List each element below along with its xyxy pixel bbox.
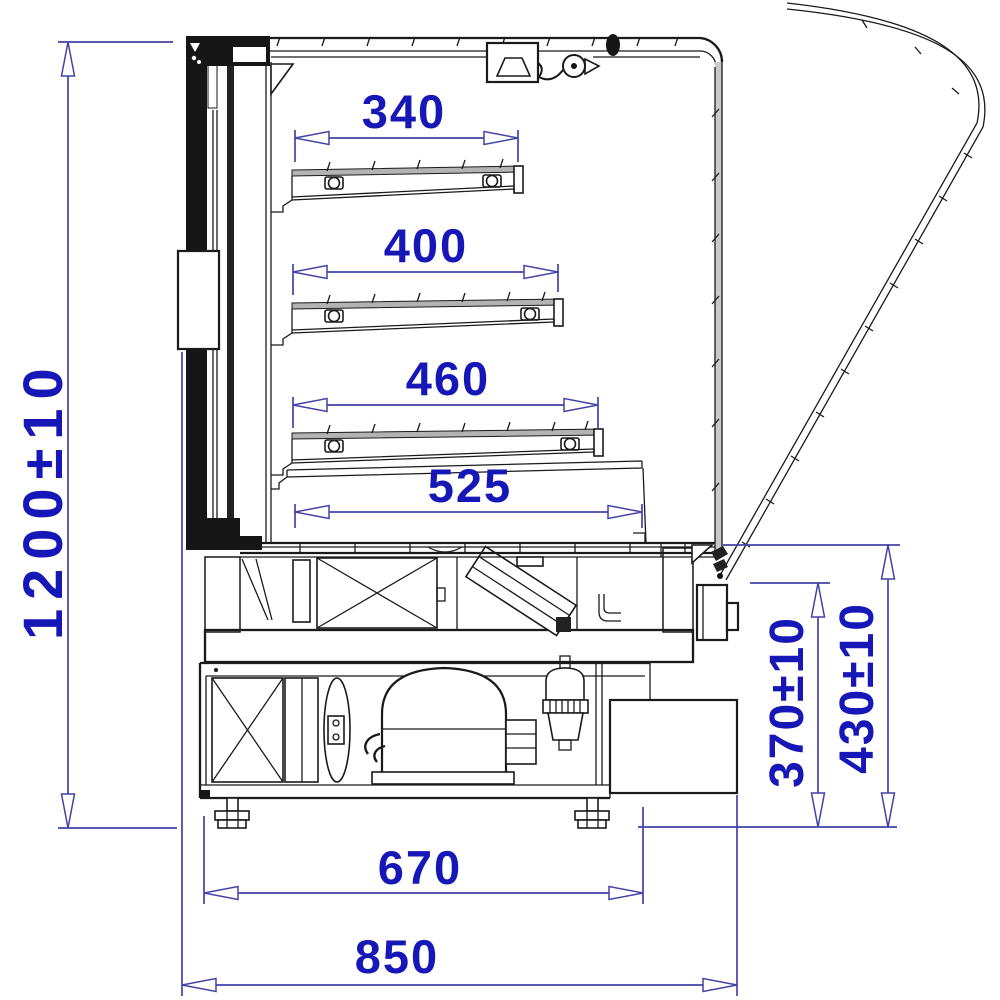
dim-label-counter-height: 430±10 xyxy=(831,602,884,774)
glass-hinge-latch xyxy=(692,545,728,579)
technical-drawing-page: 1200±10 340 400 460 525 670 850 xyxy=(0,0,1000,1000)
leveling-foot-left xyxy=(215,798,249,828)
dim-label-shelf2: 400 xyxy=(384,219,468,272)
dim-shelf1-depth: 340 xyxy=(295,85,518,162)
interior-rear-wall xyxy=(266,62,293,543)
compressor xyxy=(365,668,536,784)
filter-drier xyxy=(543,656,588,750)
front-glass-closed xyxy=(712,62,722,557)
insulated-base xyxy=(205,548,693,662)
dim-label-base-depth: 670 xyxy=(378,841,462,894)
dim-shelf2-depth: 400 xyxy=(293,219,558,295)
machine-compartment xyxy=(200,656,737,828)
shelf-1 xyxy=(271,159,523,212)
rear-door xyxy=(178,36,262,550)
leveling-foot-right xyxy=(575,798,609,828)
dim-base-depth: 670 xyxy=(204,807,643,904)
dim-label-shelf3: 460 xyxy=(406,352,490,405)
interior-lamp xyxy=(487,43,538,82)
dim-label-overall-height: 1200±10 xyxy=(11,359,74,640)
shelf-2 xyxy=(271,292,563,345)
air-deflector xyxy=(271,64,293,94)
dim-label-shelf1: 340 xyxy=(362,85,446,138)
drain-outlet-box xyxy=(697,585,738,640)
dim-label-deck: 525 xyxy=(428,459,512,512)
rear-electrical-box xyxy=(610,700,737,793)
dim-overall-height: 1200±10 xyxy=(11,42,177,828)
evaporator-compartment xyxy=(242,546,621,635)
condenser xyxy=(212,678,318,782)
dim-shelf3-depth: 460 xyxy=(293,352,598,428)
dim-label-overall-depth: 850 xyxy=(355,930,439,983)
lock-bracket xyxy=(538,55,599,79)
condenser-fan xyxy=(324,678,350,782)
dim-label-outlet-height: 370±10 xyxy=(761,616,814,788)
door-handle xyxy=(178,251,219,349)
front-glass-open xyxy=(692,3,985,580)
display-case-section-drawing: 1200±10 340 400 460 525 670 850 xyxy=(0,0,1000,1000)
hinge-bolt xyxy=(606,34,620,56)
